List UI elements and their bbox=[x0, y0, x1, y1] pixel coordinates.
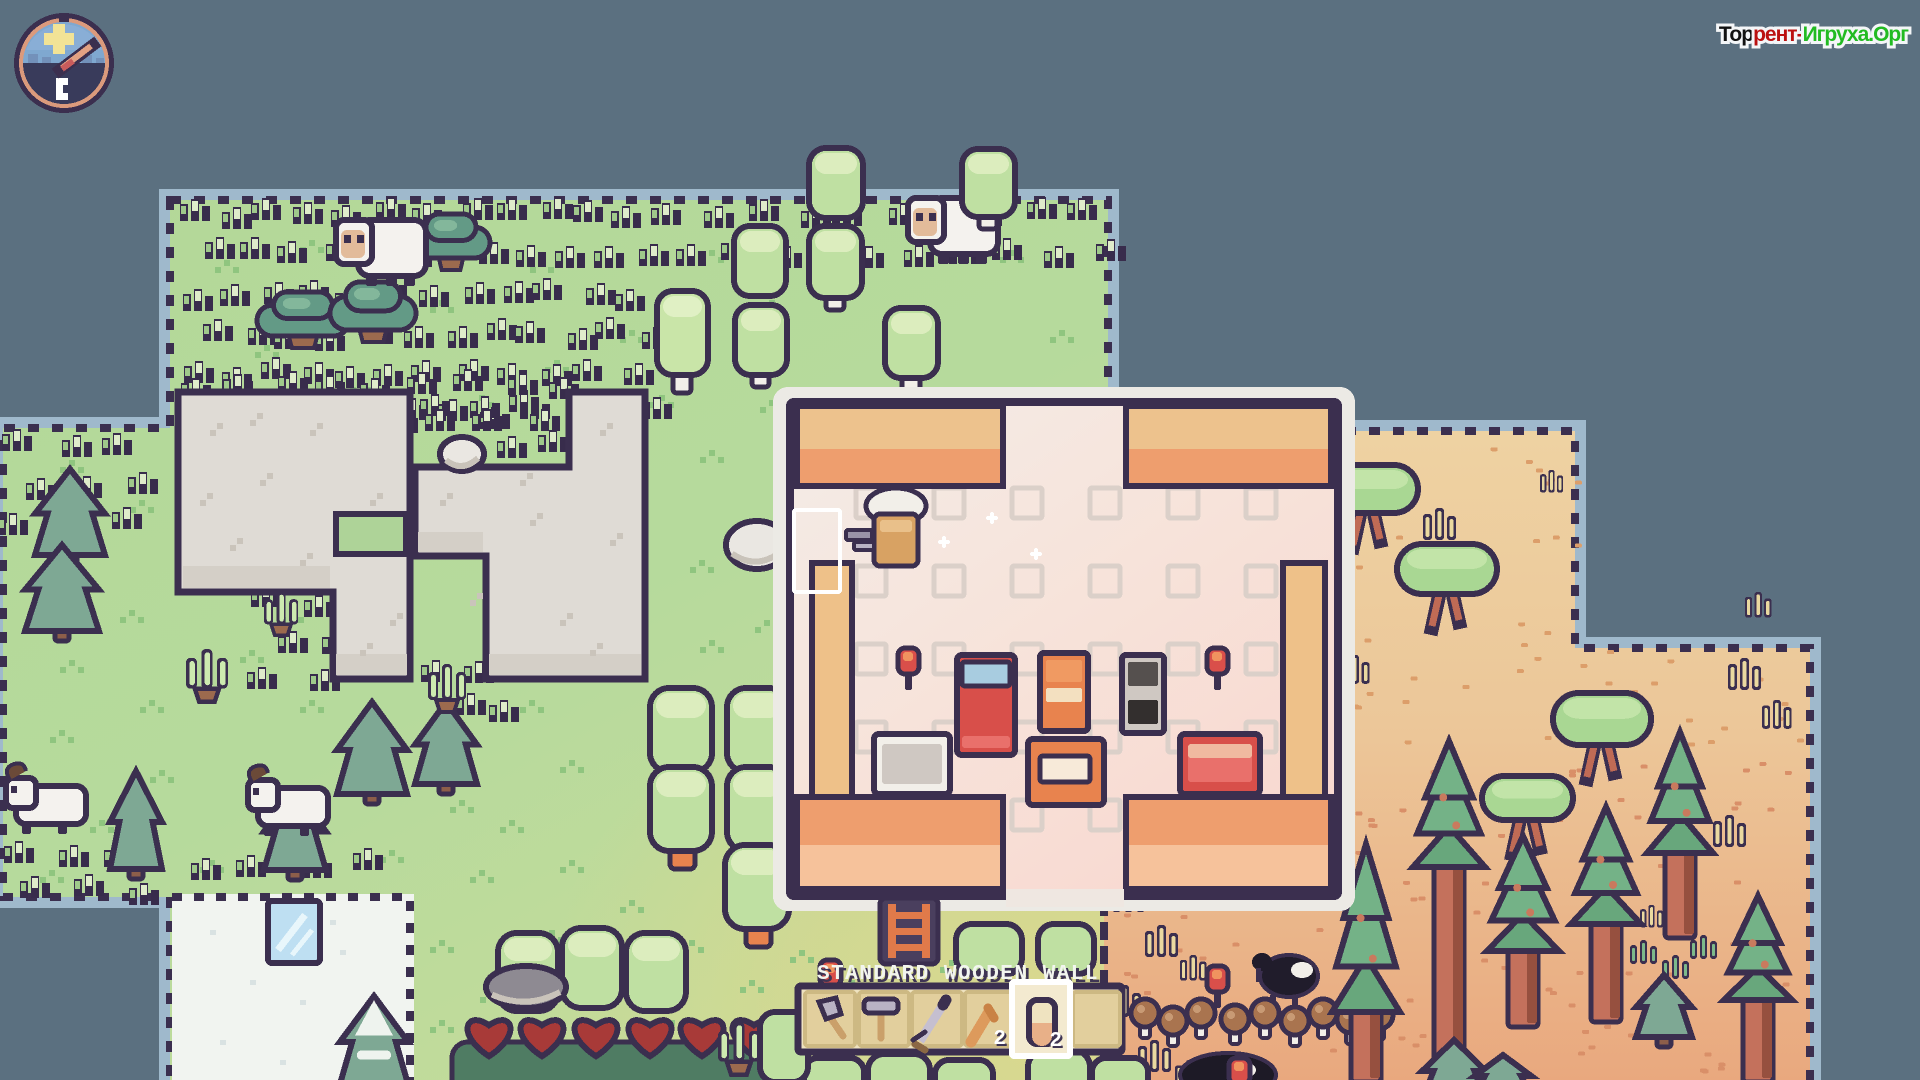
svg-text:Торрент-Игруха.Орг: Торрент-Игруха.Орг bbox=[1719, 23, 1909, 46]
svg-text:2: 2 bbox=[993, 1028, 1006, 1051]
svg-text:2: 2 bbox=[1049, 1030, 1062, 1053]
